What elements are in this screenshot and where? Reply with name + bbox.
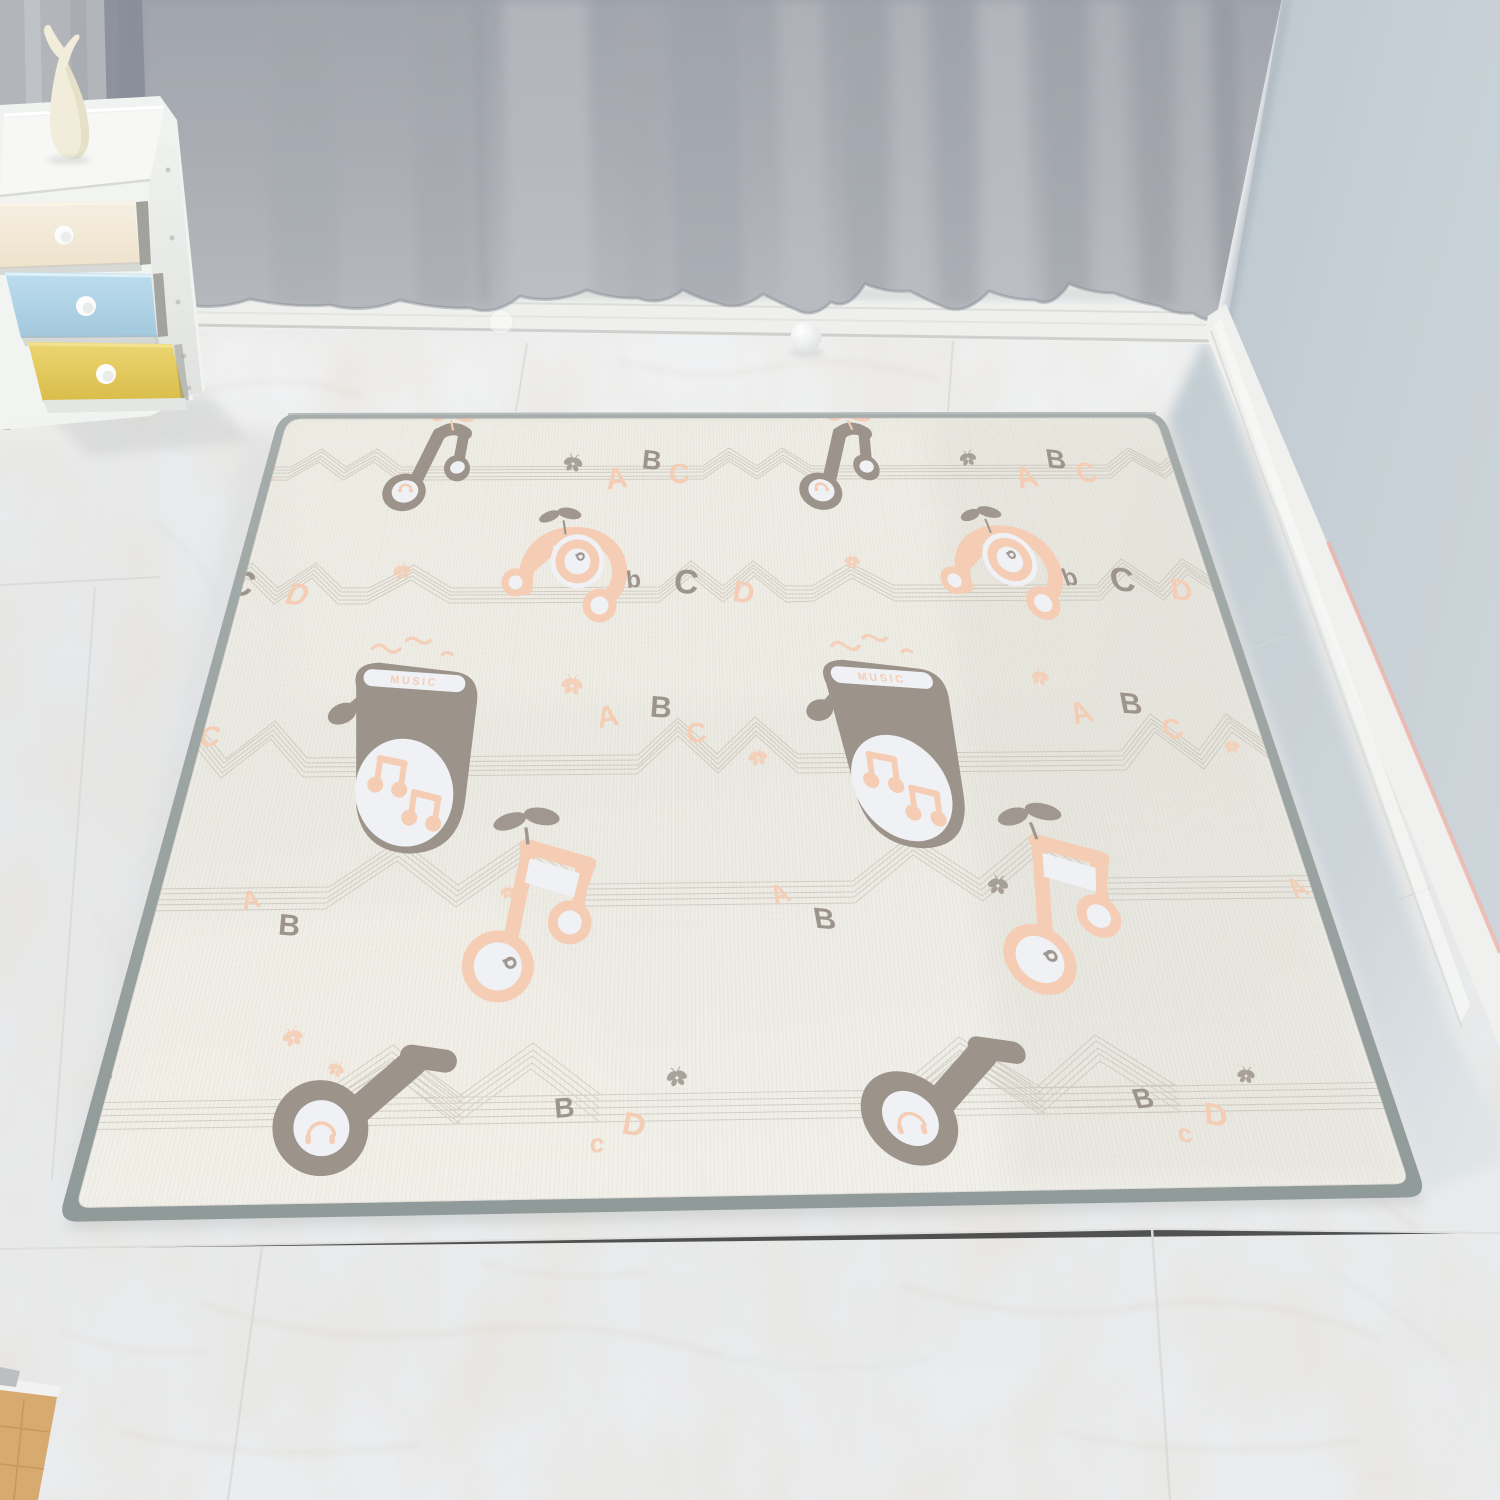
svg-text:C: C (668, 458, 690, 490)
svg-text:B: B (553, 1091, 576, 1124)
svg-text:B: B (277, 908, 301, 943)
svg-text:B: B (649, 691, 673, 725)
svg-text:C: C (672, 562, 700, 602)
svg-text:D: D (731, 575, 757, 611)
svg-text:b: b (625, 566, 642, 594)
svg-text:D: D (1202, 1095, 1229, 1134)
svg-text:C: C (685, 716, 708, 749)
svg-text:D: D (1169, 573, 1195, 608)
svg-text:B: B (641, 444, 664, 476)
svg-text:A: A (604, 461, 630, 497)
